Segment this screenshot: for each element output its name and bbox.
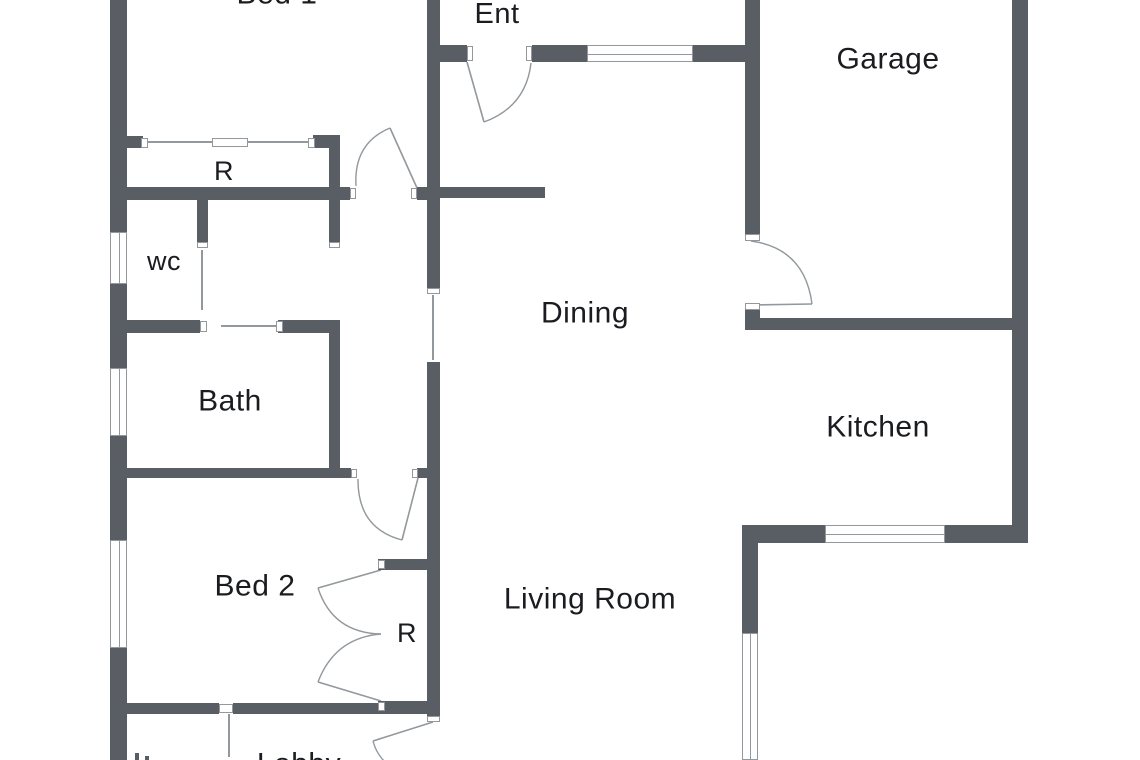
door-jamb bbox=[412, 469, 418, 478]
wall-segment bbox=[693, 45, 745, 62]
door-jamb bbox=[411, 188, 417, 199]
wall-segment bbox=[110, 468, 351, 478]
wall-segment bbox=[313, 135, 340, 148]
window-mullion bbox=[119, 232, 120, 284]
wall-segment bbox=[532, 45, 587, 62]
wall-segment bbox=[440, 187, 545, 198]
wall-segment bbox=[427, 0, 440, 290]
door-swing-layer bbox=[0, 0, 1140, 760]
door-jamb bbox=[197, 242, 208, 248]
wall-segment bbox=[945, 525, 1028, 543]
cutoff-label-stroke bbox=[145, 756, 149, 760]
room-label-living-room: Living Room bbox=[504, 583, 676, 616]
sliding-door-panel bbox=[212, 138, 248, 147]
closet-door-upper-swing-arc bbox=[318, 588, 381, 634]
bed2-door-leaf bbox=[402, 478, 418, 540]
hall-dining-door-swing-arc bbox=[356, 128, 390, 186]
door-jamb bbox=[276, 321, 283, 332]
door-jamb bbox=[526, 46, 532, 61]
door-jamb bbox=[378, 560, 385, 569]
bed2-door-swing-arc bbox=[358, 479, 402, 540]
ent-door-leaf bbox=[467, 62, 484, 122]
room-label-kitchen: Kitchen bbox=[826, 411, 930, 444]
wall-segment bbox=[110, 320, 200, 333]
room-label-bed1: Bed 1 bbox=[237, 0, 318, 11]
wall-segment bbox=[427, 362, 440, 718]
wall-segment bbox=[197, 193, 208, 243]
lobby-door-swing-arc bbox=[373, 741, 396, 760]
window-mullion bbox=[825, 534, 945, 535]
cutoff-label-stroke bbox=[135, 753, 139, 760]
door-jamb bbox=[427, 288, 440, 294]
room-label-bed2: Bed 2 bbox=[215, 570, 296, 603]
closet-door-lower-swing-arc bbox=[318, 634, 381, 682]
closet-door-lower-leaf bbox=[318, 682, 381, 701]
wall-segment bbox=[110, 436, 127, 540]
dining-garage-door-swing-arc bbox=[751, 241, 812, 304]
door-jamb bbox=[351, 469, 357, 478]
floorplan-canvas: Bed 1EntGarageRwcDiningBathKitchenBed 2R… bbox=[0, 0, 1140, 760]
door-jamb bbox=[745, 234, 760, 241]
ent-door-swing-arc bbox=[484, 63, 531, 122]
room-label-closet-r-top: R bbox=[214, 157, 234, 187]
door-jamb bbox=[141, 138, 148, 148]
wall-segment bbox=[417, 468, 428, 478]
window-mullion bbox=[750, 633, 751, 760]
window-mullion bbox=[119, 540, 120, 648]
room-label-dining: Dining bbox=[541, 297, 629, 330]
window-mullion bbox=[587, 54, 693, 55]
wall-segment bbox=[110, 187, 350, 200]
wall-segment bbox=[378, 701, 440, 712]
room-label-ent: Ent bbox=[474, 0, 519, 31]
hall-dining-door-leaf bbox=[390, 128, 417, 188]
wall-segment bbox=[278, 320, 340, 333]
door-jamb bbox=[378, 702, 385, 711]
door-jamb bbox=[350, 188, 356, 199]
wall-segment bbox=[329, 333, 340, 468]
room-label-closet-r-bed2: R bbox=[397, 619, 417, 649]
door-jamb bbox=[329, 242, 340, 248]
door-jamb bbox=[467, 46, 473, 61]
closet-door-upper-leaf bbox=[318, 570, 381, 588]
wall-segment bbox=[742, 525, 758, 633]
lobby-door-leaf bbox=[373, 722, 433, 741]
room-label-lobby: Lobby bbox=[257, 748, 341, 760]
door-jamb bbox=[745, 303, 760, 310]
room-label-garage: Garage bbox=[836, 43, 939, 76]
wall-segment bbox=[440, 45, 467, 62]
wall-segment bbox=[110, 703, 219, 714]
wall-segment bbox=[378, 559, 440, 570]
door-jamb bbox=[219, 704, 233, 713]
wall-segment bbox=[745, 318, 1012, 330]
door-jamb bbox=[427, 716, 440, 722]
room-label-wc: wc bbox=[147, 247, 181, 277]
wall-segment bbox=[745, 0, 760, 241]
window-mullion bbox=[119, 368, 120, 436]
wall-segment bbox=[417, 187, 427, 200]
door-jamb bbox=[200, 321, 207, 332]
door-jamb bbox=[308, 138, 315, 148]
wall-segment bbox=[1012, 0, 1028, 543]
wall-segment bbox=[329, 135, 340, 243]
room-label-bath: Bath bbox=[198, 385, 262, 418]
